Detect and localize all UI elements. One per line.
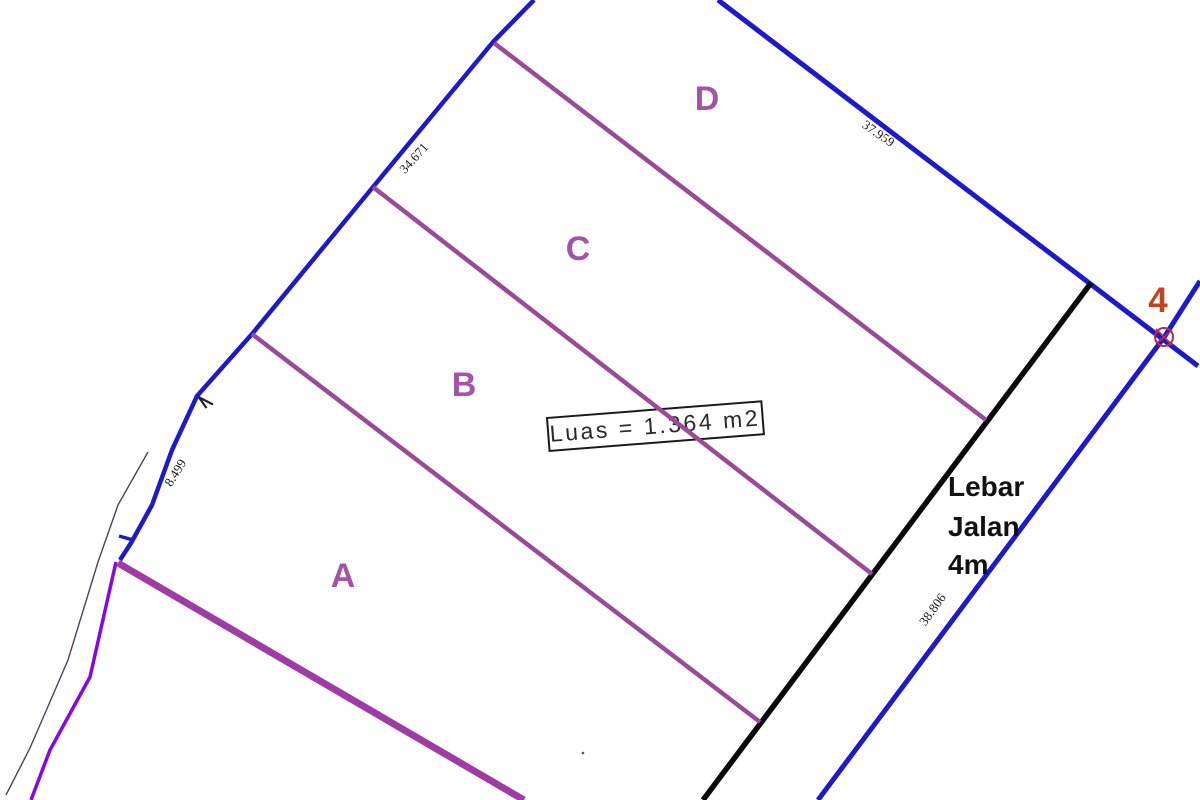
svg-text:8.499: 8.499 bbox=[161, 456, 189, 489]
svg-text:34.671: 34.671 bbox=[396, 140, 431, 177]
svg-text:B: B bbox=[452, 366, 477, 404]
svg-text:A: A bbox=[331, 557, 356, 595]
svg-text:C: C bbox=[566, 230, 591, 268]
svg-text:D: D bbox=[695, 80, 720, 118]
svg-text:Jalan: Jalan bbox=[948, 511, 1020, 542]
svg-text:4m: 4m bbox=[948, 549, 988, 580]
svg-text:38.806: 38.806 bbox=[916, 590, 949, 628]
svg-text:Lebar: Lebar bbox=[948, 471, 1024, 502]
svg-text:4: 4 bbox=[1148, 281, 1168, 320]
